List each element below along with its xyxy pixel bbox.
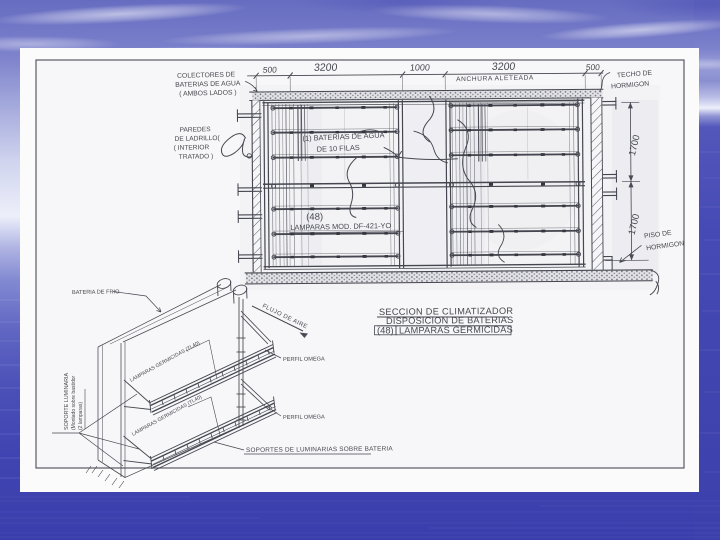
- svg-text:(2 lamparas): (2 lamparas): [78, 402, 84, 430]
- svg-text:PAREDES: PAREDES: [179, 126, 211, 134]
- svg-text:SOPORTE LUMINARIA: SOPORTE LUMINARIA: [64, 372, 70, 430]
- svg-text:COLECTORES DE: COLECTORES DE: [177, 71, 236, 79]
- svg-text:( INTERIOR: ( INTERIOR: [174, 144, 210, 152]
- svg-text:PERFIL OMEGA: PERFIL OMEGA: [283, 414, 325, 421]
- svg-text:1000: 1000: [409, 62, 430, 72]
- svg-text:3200: 3200: [491, 61, 516, 73]
- svg-text:TRATADO ): TRATADO ): [179, 153, 214, 161]
- svg-text:(48): (48): [306, 212, 323, 223]
- svg-text:( AMBOS LADOS ): ( AMBOS LADOS ): [179, 89, 237, 97]
- svg-text:DE 10 FILAS: DE 10 FILAS: [316, 143, 360, 154]
- svg-text:(Montado sobre bastidor: (Montado sobre bastidor: [71, 375, 77, 430]
- svg-text:PERFIL OMEGA: PERFIL OMEGA: [283, 356, 325, 363]
- svg-text:DE LADRILLO(: DE LADRILLO(: [175, 135, 221, 143]
- svg-text:500: 500: [585, 62, 600, 72]
- svg-text:500: 500: [262, 65, 277, 75]
- svg-text:3200: 3200: [313, 62, 338, 74]
- svg-text:BATERIA DE FRIO: BATERIA DE FRIO: [72, 289, 120, 296]
